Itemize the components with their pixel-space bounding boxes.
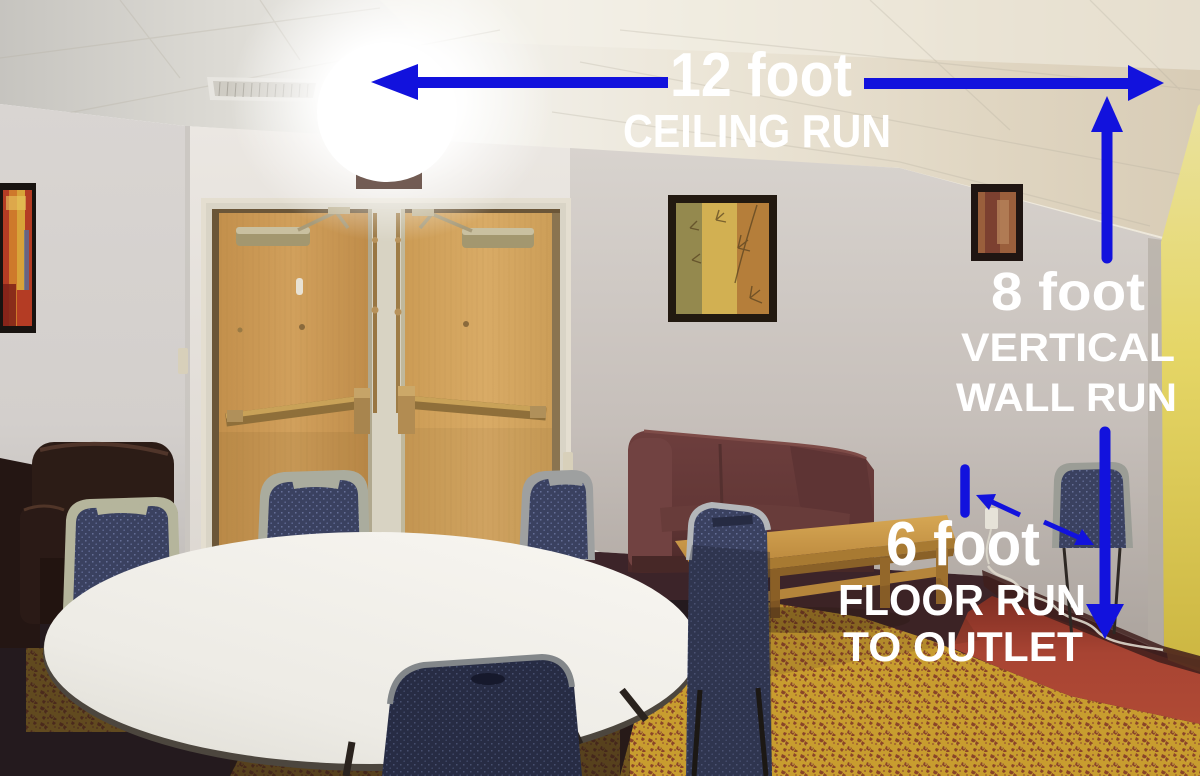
svg-text:CEILING RUN: CEILING RUN [623,105,891,157]
svg-text:VERTICAL: VERTICAL [961,326,1175,370]
svg-text:8 foot: 8 foot [991,262,1145,322]
svg-text:FLOOR RUN: FLOOR RUN [838,576,1086,625]
svg-text:12 foot: 12 foot [670,41,852,110]
svg-text:6 foot: 6 foot [886,510,1040,579]
svg-text:WALL RUN: WALL RUN [956,376,1177,420]
svg-text:TO OUTLET: TO OUTLET [843,623,1083,670]
